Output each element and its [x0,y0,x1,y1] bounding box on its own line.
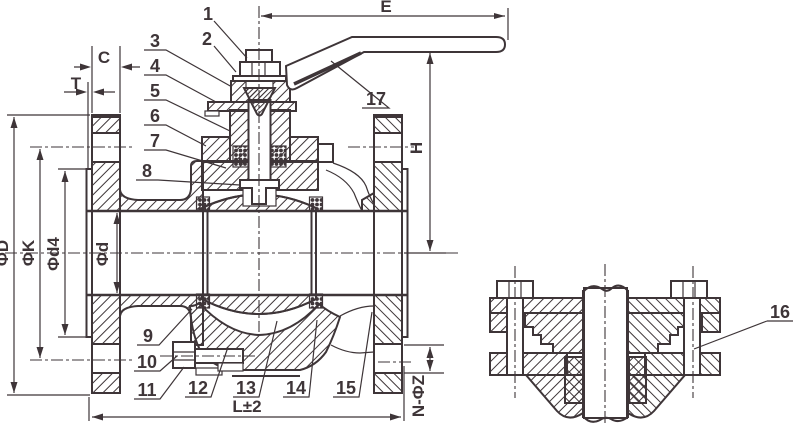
aux-bolt-right-shank [684,298,700,375]
right-flange [374,115,408,393]
handle-lever [286,37,505,89]
dim-phiK: ΦK [19,149,44,358]
neck-right-wing [290,137,318,162]
part-label-6: 6 [150,106,160,126]
part-label-13: 13 [236,378,256,398]
part-label-9: 9 [143,326,153,346]
neck-left-wing [202,137,230,162]
part-label-11: 11 [137,380,156,400]
part-label-14: 14 [286,378,306,398]
part-label-17: 17 [366,89,386,109]
part-label-15: 15 [336,378,356,398]
ball-valve-section-drawing: E H C T ΦD ΦK [0,0,800,425]
dim-H: H [404,53,446,253]
part-label-12: 12 [188,378,208,398]
part-label-7: 7 [150,131,160,151]
dim-C: C [74,46,140,113]
dim-label-phid: Φd [93,242,112,266]
stem-packing-left [233,146,248,167]
stud-head [173,342,195,368]
part-label-10: 10 [137,352,157,372]
dim-label-phiD: ΦD [0,240,12,266]
dim-nphiz: N-ΦZ [404,345,444,417]
part-label-3: 3 [150,31,160,51]
part-label-5: 5 [150,81,160,101]
dim-phid4: Φd4 [44,169,88,337]
drawing-sheet: E H C T ΦD ΦK [0,0,800,425]
dim-label-E: E [380,0,391,16]
part-label-8: 8 [142,161,152,181]
dim-E: E [261,0,508,40]
stem-nut [240,62,280,76]
aux-packing-right [629,357,646,403]
aux-packing-left [565,357,583,403]
dim-label-H: H [407,142,426,154]
part-label-1: 1 [203,4,213,24]
aux-bolt-right-head [671,281,707,298]
dim-label-phiK: ΦK [19,239,38,266]
stem-packing-right [271,146,286,167]
part-label-4: 4 [150,56,160,76]
part-label-2: 2 [202,29,212,49]
dim-label-C: C [98,48,110,67]
body-bottom [190,163,374,376]
dim-label-T: T [71,74,82,93]
dim-label-L: L±2 [232,397,261,416]
part-label-16: 16 [770,302,790,322]
dim-label-nphiz: N-ΦZ [409,375,428,417]
dim-label-phid4: Φd4 [44,237,63,271]
